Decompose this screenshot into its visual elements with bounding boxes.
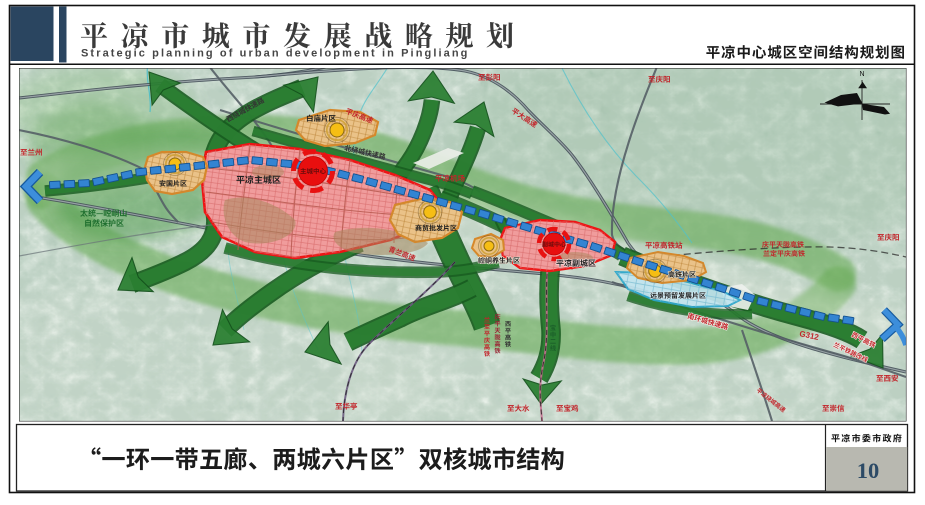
svg-text:N: N xyxy=(859,71,864,78)
svg-text:10: 10 xyxy=(857,458,880,483)
svg-text:Strategic planning of urban de: Strategic planning of urban development … xyxy=(81,48,470,60)
